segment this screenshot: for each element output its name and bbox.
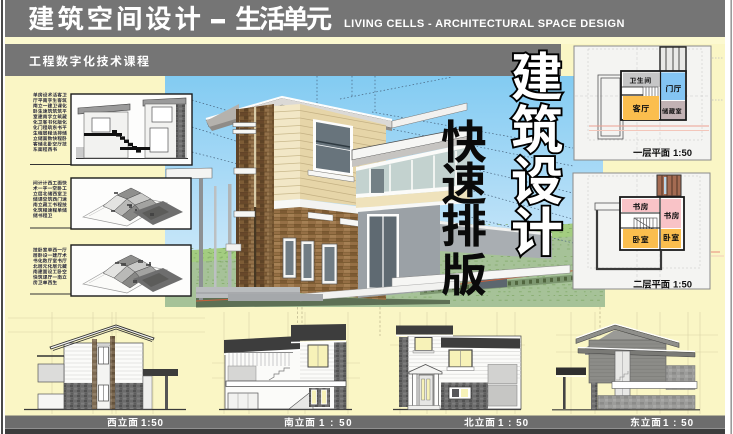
svg-text:1 : 50: 1 : 50 [498, 418, 529, 429]
svg-text:1:50: 1:50 [673, 280, 692, 291]
svg-text:1 : 50: 1 : 50 [319, 418, 353, 429]
svg-text:LIVING CELLS - ARCHITECTURAL S: LIVING CELLS - ARCHITECTURAL SPACE DESIG… [344, 18, 625, 30]
svg-text:1:50: 1:50 [673, 148, 692, 159]
svg-text:1 : 50: 1 : 50 [663, 418, 694, 429]
svg-text:1:50: 1:50 [141, 418, 164, 429]
